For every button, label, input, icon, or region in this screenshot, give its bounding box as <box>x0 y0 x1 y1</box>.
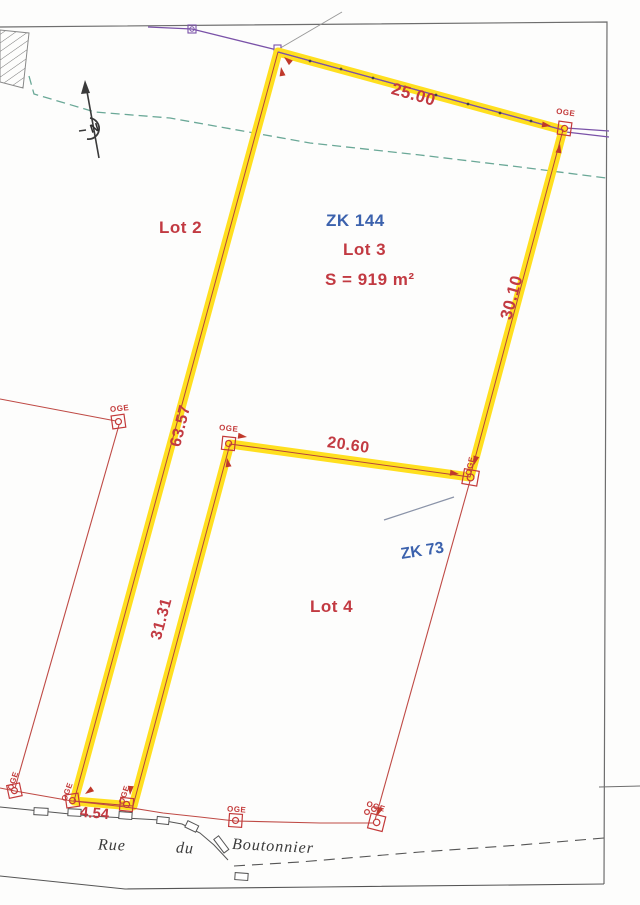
street-name-du: du <box>176 841 195 858</box>
oge-label: OGE <box>227 805 247 814</box>
lot4-label: Lot 4 <box>310 598 353 615</box>
grey-tie-line <box>277 12 342 50</box>
zk73-strike-line <box>384 497 454 520</box>
lot2-label: Lot 2 <box>159 219 202 236</box>
street-name-rue: Rue <box>98 838 126 855</box>
parcel-ref-label: ZK 144 <box>326 212 385 229</box>
witness-point-circle <box>365 810 370 815</box>
lot3-label: Lot 3 <box>343 241 386 258</box>
plan-drawing <box>0 0 640 905</box>
hatch-area <box>0 30 29 88</box>
parcel-outline-highlight <box>74 52 563 806</box>
dim-4-54: 4.54 <box>79 805 109 822</box>
dimension-arrows <box>83 55 563 817</box>
survey-plan-sheet: N Lot 2 ZK 144 Lot 3 S = 919 m² Lot 4 ZK… <box>0 0 640 905</box>
red-boundary-lines <box>0 399 470 823</box>
green-dashed-line <box>29 76 606 178</box>
parcel-area-label: S = 919 m² <box>325 271 415 288</box>
